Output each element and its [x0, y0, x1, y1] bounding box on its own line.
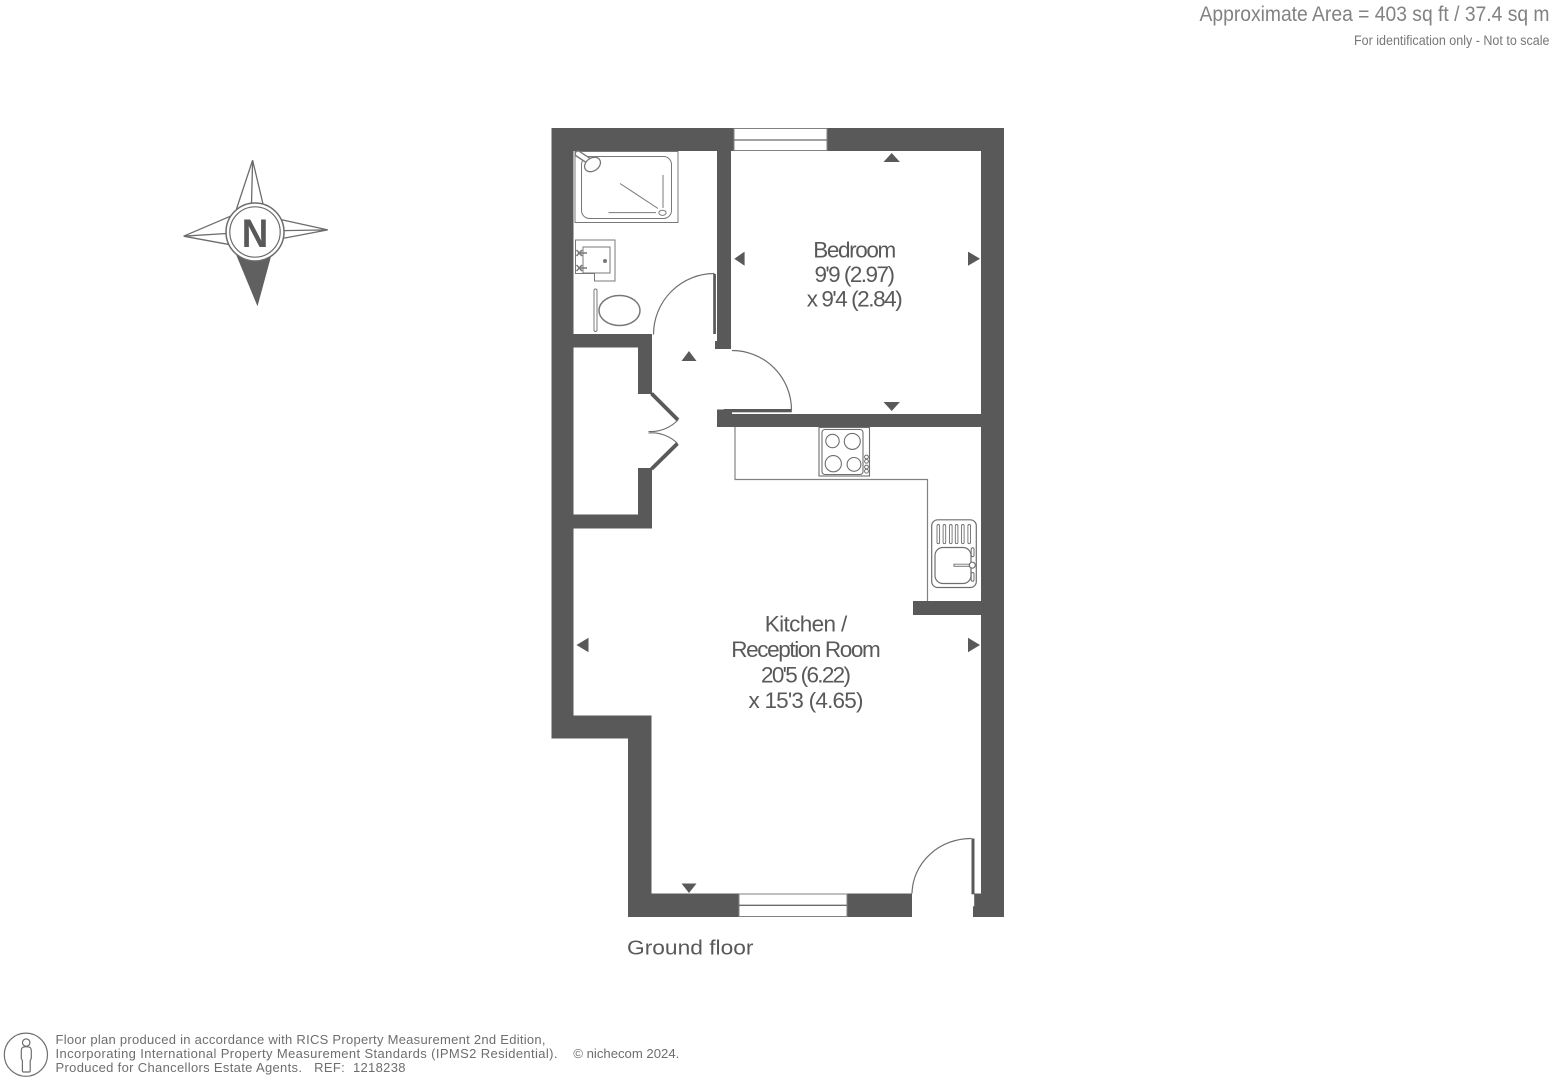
- svg-text:20'5 (6.22): 20'5 (6.22): [761, 663, 851, 688]
- svg-text:Approximate Area = 403 sq ft /: Approximate Area = 403 sq ft / 37.4 sq m: [1200, 2, 1550, 26]
- svg-text:Incorporating International Pr: Incorporating International Property Mea…: [56, 1046, 558, 1061]
- svg-text:N: N: [242, 212, 269, 256]
- svg-text:Kitchen /: Kitchen /: [765, 612, 848, 637]
- svg-text:Reception Room: Reception Room: [731, 637, 881, 662]
- svg-text:Produced for Chancellors Estat: Produced for Chancellors Estate Agents. …: [56, 1060, 406, 1075]
- svg-text:Ground floor: Ground floor: [627, 937, 754, 960]
- svg-text:x 9'4 (2.84): x 9'4 (2.84): [807, 287, 903, 312]
- svg-text:Floor plan produced in accorda: Floor plan produced in accordance with R…: [56, 1032, 546, 1047]
- svg-text:x 15'3 (4.65): x 15'3 (4.65): [749, 688, 864, 713]
- svg-text:For identification only - Not: For identification only - Not to scale: [1354, 33, 1550, 48]
- svg-text:© nichecom 2024.: © nichecom 2024.: [573, 1046, 679, 1061]
- svg-text:9'9 (2.97): 9'9 (2.97): [814, 262, 895, 287]
- svg-text:Bedroom: Bedroom: [813, 238, 896, 263]
